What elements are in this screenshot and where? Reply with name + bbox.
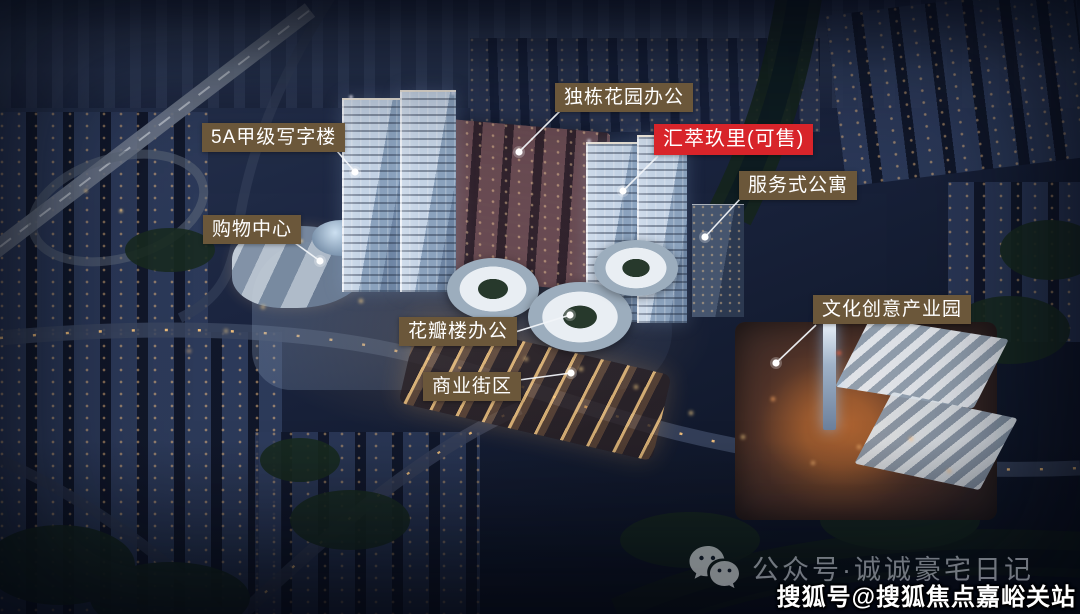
callout-culture-park: 文化创意产业园 (813, 295, 971, 324)
callout-serviced-apartment: 服务式公寓 (739, 171, 857, 200)
callout-office-5a: 5A甲级写字楼 (202, 123, 345, 152)
callout-petal-office: 花瓣楼办公 (399, 317, 517, 346)
aerial-masterplan-render: 5A甲级写字楼 独栋花园办公 汇萃玖里(可售) 服务式公寓 购物中心 文化创意产… (0, 0, 1080, 614)
callout-shopping-center: 购物中心 (203, 215, 301, 244)
callout-garden-office: 独栋花园办公 (555, 83, 693, 112)
wechat-icon (688, 544, 740, 590)
souhu-watermark-text: 搜狐号@搜狐焦点嘉峪关站 (777, 577, 1076, 612)
callout-huicui-jiuli: 汇萃玖里(可售) (654, 124, 813, 155)
callout-commercial-street: 商业街区 (423, 372, 521, 401)
